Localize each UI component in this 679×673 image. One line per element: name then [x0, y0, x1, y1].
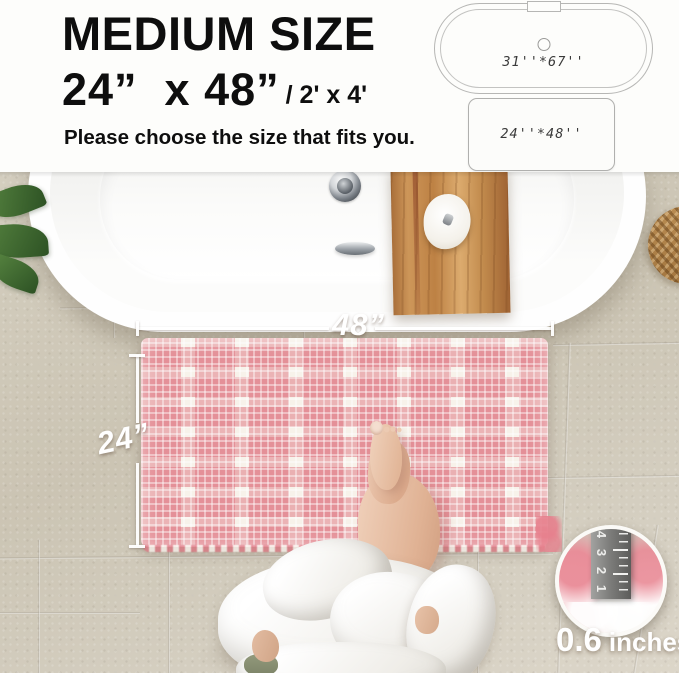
plant-leaf [0, 253, 43, 294]
person-big-toe [370, 421, 383, 435]
size-secondary-text: / 2' x 4' [286, 81, 367, 116]
mat-corner-fluff [536, 516, 562, 552]
bath-caddy-board [390, 172, 510, 315]
ruler-number: 3 [594, 549, 609, 556]
width-dimension-label: 48” [332, 307, 385, 343]
width-dimension-end-tick [136, 321, 139, 336]
ruler-number: 4 [594, 531, 609, 538]
pile-height-caption: 0.6inches [556, 621, 679, 659]
person-hand [252, 630, 279, 662]
ruler-number: 1 [594, 585, 609, 592]
mat-size-label: 24''*48'' [469, 126, 614, 142]
bath-mat [141, 338, 548, 547]
height-dimension-end-tick [129, 545, 145, 548]
height-dimension-line [136, 463, 139, 546]
ruler-big-ticks [613, 525, 628, 597]
product-image: MEDIUM SIZE 24” x 48” / 2' x 4' Please c… [0, 0, 679, 673]
width-dimension-line [375, 327, 552, 330]
grout-line [553, 342, 679, 346]
mat-outline-diagram: 24''*48'' [468, 98, 615, 171]
pile-height-value: 0.6 [556, 621, 602, 658]
person-toes [384, 426, 402, 433]
width-dimension-line [137, 327, 329, 330]
height-dimension-line [136, 355, 139, 423]
size-primary-text: 24” x 48” [62, 64, 280, 116]
bathtub-faucet-notch [527, 1, 561, 12]
header-banner: MEDIUM SIZE 24” x 48” / 2' x 4' Please c… [0, 0, 679, 172]
bathtub-drain-icon [537, 38, 550, 51]
grout-line [0, 612, 140, 614]
candle [423, 194, 471, 250]
pile-height-unit: inches [609, 627, 679, 657]
grout-line [168, 548, 170, 673]
bathtub-outline-diagram: 31''*67'' [434, 3, 653, 94]
height-dimension-end-tick [129, 354, 145, 357]
grout-line [0, 553, 553, 560]
bathroom-photo: 48” 24” 4 3 2 1 [0, 172, 679, 673]
page-title: MEDIUM SIZE [62, 6, 376, 61]
person-other-foot [415, 606, 439, 634]
ruler-number: 2 [594, 567, 609, 574]
wood-grain-streak [412, 172, 420, 315]
woven-basket [648, 206, 679, 284]
candle-wick [442, 213, 455, 227]
ruler: 4 3 2 1 [591, 525, 631, 599]
size-subtitle: Please choose the size that fits you. [64, 126, 415, 150]
popup-drain-icon [335, 242, 375, 255]
size-line: 24” x 48” / 2' x 4' [62, 64, 367, 116]
bathtub-size-label: 31''*67'' [435, 54, 652, 70]
grout-line [38, 540, 40, 673]
width-dimension-end-tick [551, 321, 554, 336]
